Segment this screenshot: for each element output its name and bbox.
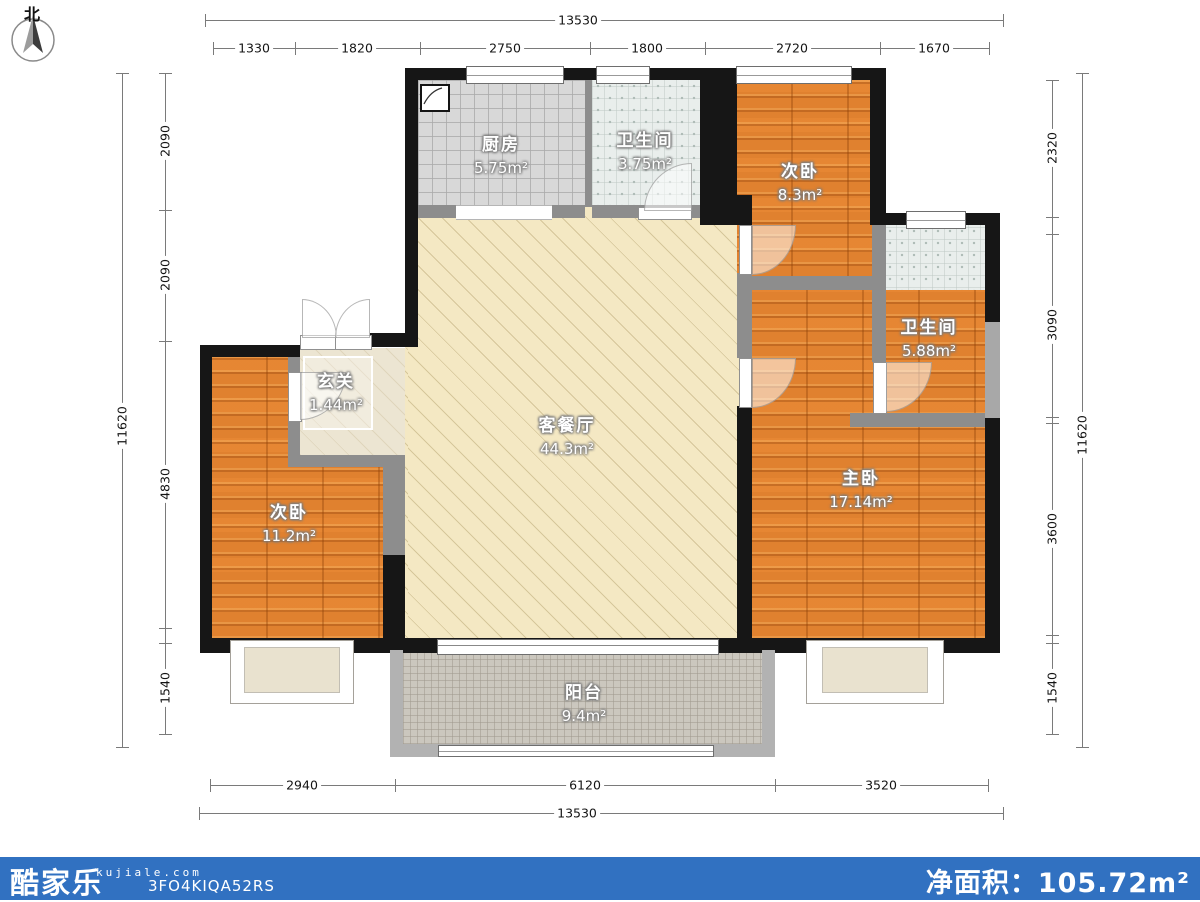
wall xyxy=(585,80,592,207)
dim-label: 3600 xyxy=(1045,510,1060,548)
dim-label: 2090 xyxy=(158,256,173,294)
dim-label: 1540 xyxy=(1045,669,1060,707)
dim-tick xyxy=(1046,234,1059,235)
bath-top-window xyxy=(596,66,650,84)
net-area: 净面积：105.72m² xyxy=(926,861,1190,900)
dim-tick xyxy=(1076,73,1089,74)
wall xyxy=(383,467,405,555)
room-name: 次卧 xyxy=(262,501,316,526)
wall-exterior xyxy=(737,195,752,225)
dim-line xyxy=(205,20,1003,21)
door-leaf xyxy=(873,362,887,414)
wall xyxy=(288,455,405,467)
room-name: 客餐厅 xyxy=(539,414,596,439)
bay-window-sill xyxy=(244,647,340,693)
door-leaf xyxy=(739,225,752,275)
dim-tick xyxy=(159,643,172,644)
brand-logo: 酷家乐 xyxy=(10,860,103,902)
dim-tick xyxy=(989,42,990,55)
net-area-value: 105.72m² xyxy=(1038,868,1190,899)
bath-right-window xyxy=(906,211,966,229)
room-label-kitchen: 厨房5.75m² xyxy=(474,133,528,179)
dim-label: 2090 xyxy=(158,122,173,160)
dim-label: 1670 xyxy=(915,41,953,56)
room-name: 玄关 xyxy=(309,370,363,395)
room-name: 卫生间 xyxy=(901,316,958,341)
room-label-master: 主卧17.14m² xyxy=(829,467,893,513)
dim-tick xyxy=(1046,217,1059,218)
room-area: 44.3m² xyxy=(539,438,596,460)
wall-exterior xyxy=(370,333,418,347)
room-label-living: 客餐厅44.3m² xyxy=(539,414,596,460)
bedroom-top-window xyxy=(736,66,852,84)
kitchen-window xyxy=(466,66,564,84)
wall xyxy=(288,357,300,372)
dim-label: 3090 xyxy=(1045,306,1060,344)
dim-label: 2940 xyxy=(283,778,321,793)
dim-tick xyxy=(116,747,129,748)
dim-tick xyxy=(205,14,206,27)
room-area: 17.14m² xyxy=(829,491,893,513)
dim-label: 11620 xyxy=(1075,412,1090,458)
dim-label: 13530 xyxy=(554,806,600,821)
dim-tick xyxy=(590,42,591,55)
wall-exterior xyxy=(870,68,886,225)
dim-line xyxy=(213,48,989,49)
room-area: 3.75m² xyxy=(617,153,674,175)
wall-window-segment xyxy=(985,322,1000,418)
wall xyxy=(850,413,985,427)
room-name: 阳台 xyxy=(562,681,606,706)
floorplan-page: { "north_label": "北", "rooms": { "kitche… xyxy=(0,0,1200,900)
room-area: 11.2m² xyxy=(262,525,316,547)
room-name: 主卧 xyxy=(829,467,893,492)
room-label-entry: 玄关1.44m² xyxy=(309,370,363,416)
wall xyxy=(737,273,752,358)
dim-label: 1800 xyxy=(628,41,666,56)
balcony-wall xyxy=(390,650,403,757)
dim-tick xyxy=(1046,80,1059,81)
dim-line xyxy=(1082,73,1083,747)
dim-tick xyxy=(1003,14,1004,27)
door-leaf xyxy=(739,358,752,408)
dim-tick xyxy=(395,779,396,792)
room-name: 次卧 xyxy=(778,160,822,185)
dim-tick xyxy=(159,210,172,211)
wall-exterior xyxy=(383,555,405,640)
dim-label: 2320 xyxy=(1045,129,1060,167)
room-label-bedroom-top: 次卧8.3m² xyxy=(778,160,822,206)
dim-tick xyxy=(159,734,172,735)
wall xyxy=(872,225,886,362)
wall-exterior xyxy=(405,68,418,345)
wall-exterior xyxy=(985,213,1000,650)
wall xyxy=(752,276,886,290)
flue-icon xyxy=(420,84,450,112)
dim-label: 11620 xyxy=(115,403,130,449)
room-label-bath-top: 卫生间3.75m² xyxy=(617,129,674,175)
dim-tick xyxy=(988,779,989,792)
dim-line xyxy=(199,813,1003,814)
dim-tick xyxy=(1003,807,1004,820)
bay-window-sill xyxy=(822,647,928,693)
room-name: 卫生间 xyxy=(617,129,674,154)
dim-label: 2720 xyxy=(773,41,811,56)
floor-bedroom-left xyxy=(212,467,383,638)
room-label-balcony: 阳台9.4m² xyxy=(562,681,606,727)
dim-label: 3520 xyxy=(862,778,900,793)
wall-exterior xyxy=(700,68,737,225)
dim-tick xyxy=(159,341,172,342)
dim-tick xyxy=(199,807,200,820)
kitchen-opening xyxy=(456,205,552,220)
room-area: 1.44m² xyxy=(309,394,363,416)
balcony-wall xyxy=(762,650,775,757)
dim-tick xyxy=(159,628,172,629)
entry-door-swing-arc xyxy=(302,299,337,338)
dim-tick xyxy=(775,779,776,792)
dim-label: 2750 xyxy=(486,41,524,56)
dim-tick xyxy=(295,42,296,55)
room-label-bedroom-left: 次卧11.2m² xyxy=(262,501,316,547)
dim-tick xyxy=(420,42,421,55)
dim-label: 6120 xyxy=(566,778,604,793)
room-label-bath-right: 卫生间5.88m² xyxy=(901,316,958,362)
wall xyxy=(288,420,300,455)
dim-tick xyxy=(159,73,172,74)
dim-tick xyxy=(880,42,881,55)
net-area-label: 净面积： xyxy=(926,868,1038,899)
floorplan-canvas: 厨房5.75m²卫生间3.75m²次卧8.3m²卫生间5.88m²主卧17.14… xyxy=(0,0,1200,857)
dim-tick xyxy=(213,42,214,55)
wall-exterior xyxy=(205,345,300,357)
entry-door-swing-arc xyxy=(335,299,370,338)
dim-tick xyxy=(1046,734,1059,735)
dim-tick xyxy=(1046,423,1059,424)
balcony-rail-window xyxy=(438,745,714,757)
dim-tick xyxy=(1046,417,1059,418)
room-area: 5.75m² xyxy=(474,157,528,179)
room-area: 5.88m² xyxy=(901,340,958,362)
dim-line xyxy=(165,73,166,734)
dim-label: 1820 xyxy=(338,41,376,56)
room-area: 9.4m² xyxy=(562,705,606,727)
dim-tick xyxy=(1046,643,1059,644)
room-area: 8.3m² xyxy=(778,184,822,206)
dim-label: 1330 xyxy=(235,41,273,56)
dim-tick xyxy=(116,73,129,74)
dim-label: 1540 xyxy=(158,669,173,707)
room-name: 厨房 xyxy=(474,133,528,158)
plan-code: 3FO4KIQA52RS xyxy=(148,877,275,895)
dim-tick xyxy=(1046,635,1059,636)
wall-exterior xyxy=(200,345,212,650)
dim-tick xyxy=(705,42,706,55)
balcony-sliding-door xyxy=(437,639,719,655)
wall-exterior xyxy=(737,406,752,640)
dim-label: 13530 xyxy=(555,13,601,28)
dim-tick xyxy=(1076,747,1089,748)
dim-label: 4830 xyxy=(158,465,173,503)
dim-tick xyxy=(210,779,211,792)
